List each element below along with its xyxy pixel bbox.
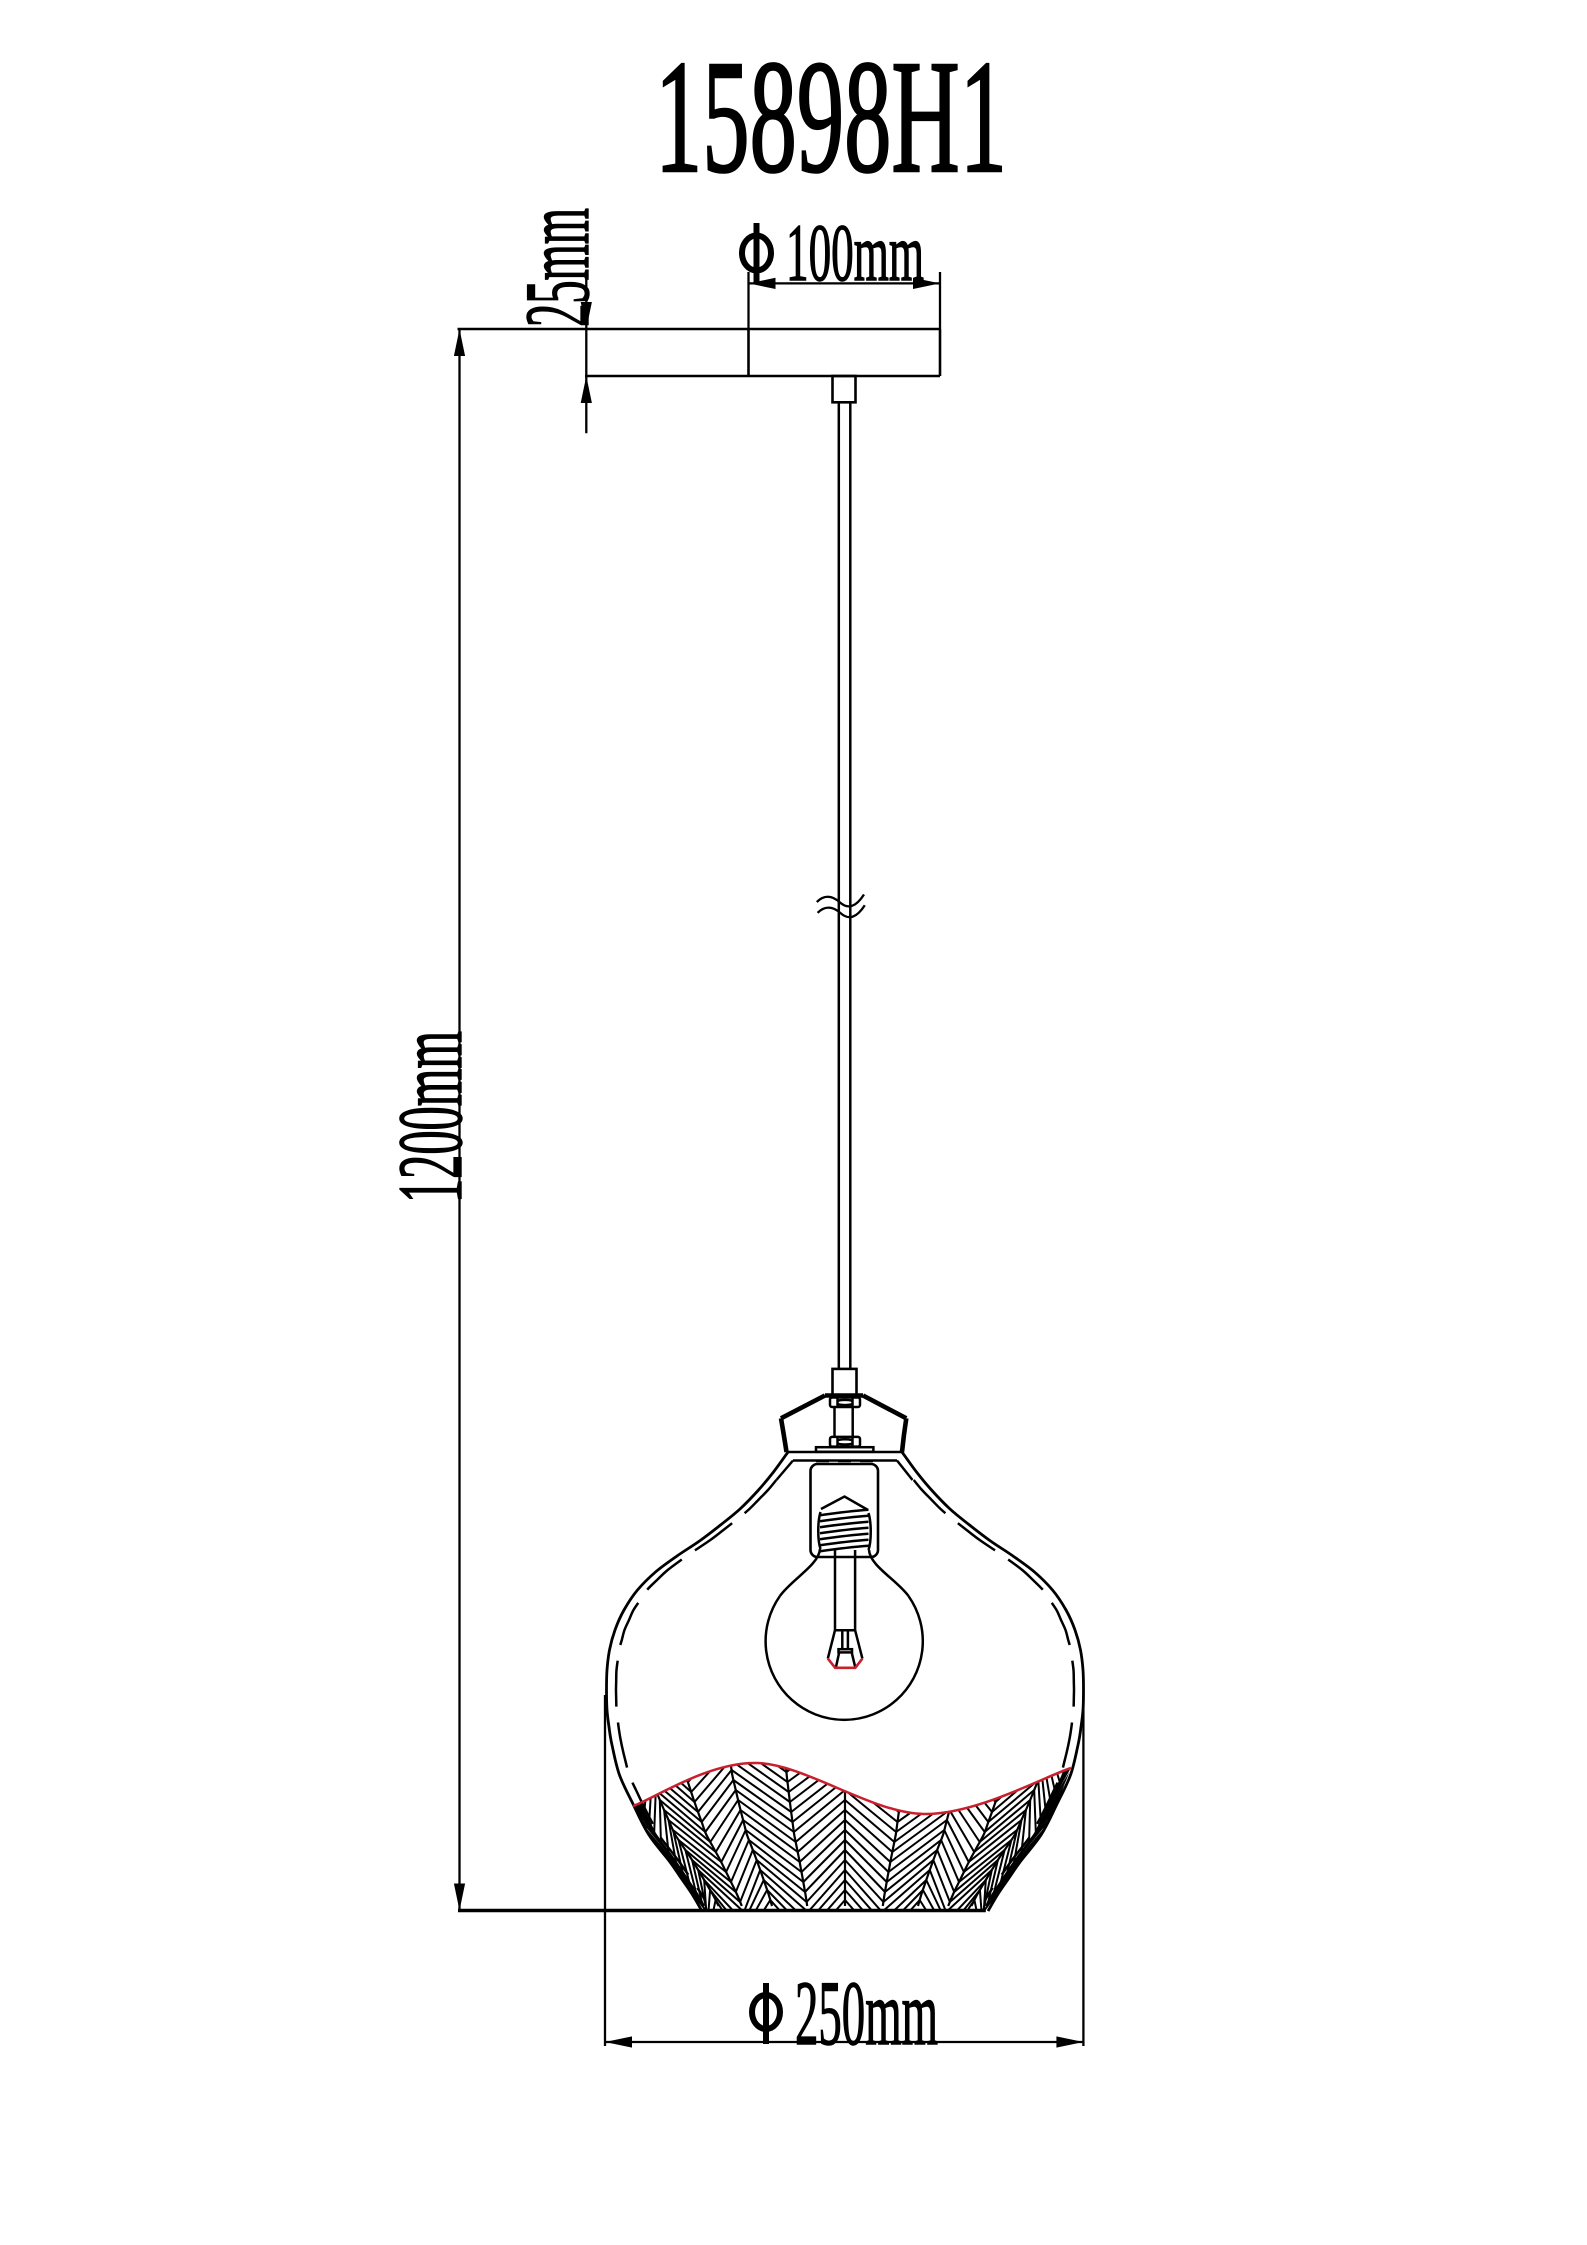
svg-text:250mm: 250mm — [795, 1962, 938, 2064]
svg-text:25mm: 25mm — [506, 208, 608, 327]
svg-text:15898H1: 15898H1 — [655, 28, 1007, 207]
svg-text:1200mm: 1200mm — [379, 1031, 481, 1203]
